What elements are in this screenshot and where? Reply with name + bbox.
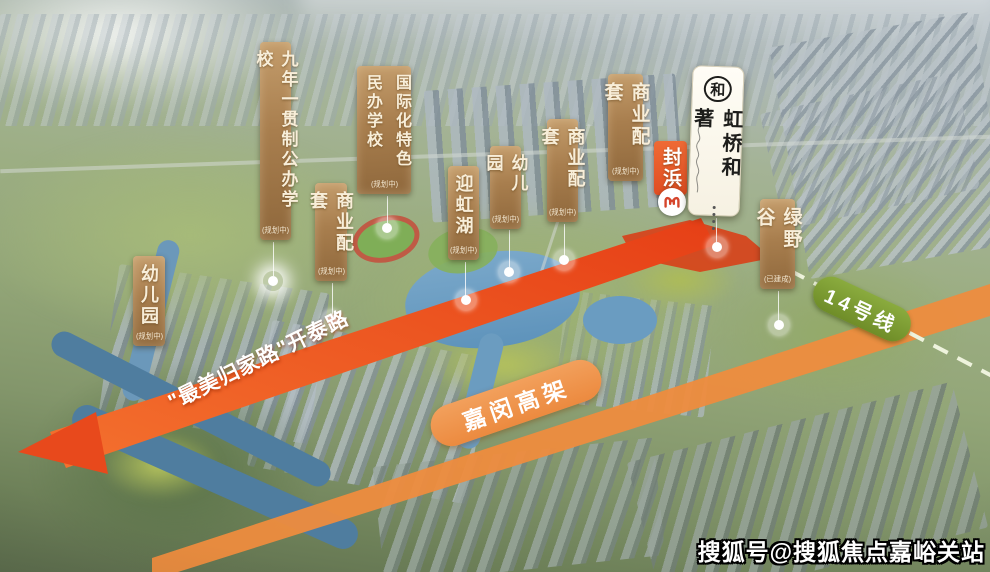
label-note: (规划中) <box>262 224 289 235</box>
station-fengbang-label: 封浜 <box>654 141 687 195</box>
label-kindergarten-center: 幼儿园 (规划中) <box>490 146 521 229</box>
metro-logo <box>658 188 686 216</box>
map-marker-commercial-center <box>554 250 574 270</box>
label-text-columns: 国际化特色 民办学校 <box>355 74 413 169</box>
label-intl-private-school: 国际化特色 民办学校 (规划中) <box>357 66 411 194</box>
project-logo-icon: 和 <box>703 76 732 103</box>
metro-logo-icon <box>661 191 683 213</box>
aerial-masterplan-map: "最美归家路"开泰路 嘉闵高架 14号线 幼儿园 (规划中) 九年一贯制公办学校… <box>0 0 990 572</box>
label-green-valley: 绿野谷 (已建成) <box>760 199 795 289</box>
map-marker-lake <box>456 290 476 310</box>
label-commercial-center: 商业配套 (规划中) <box>547 119 578 222</box>
label-commercial-east: 商业配套 (规划中) <box>608 74 643 181</box>
map-marker-intl-school <box>377 218 397 238</box>
map-marker-public-school <box>263 271 283 291</box>
project-card: 和 虹桥和著 <box>687 65 744 217</box>
label-text: 迎虹湖 <box>451 174 477 237</box>
map-marker-kindergarten-center <box>499 262 519 282</box>
label-kindergarten-west: 幼儿园 (规划中) <box>133 256 165 346</box>
watermark: 搜狐号@搜狐焦点嘉峪关站 <box>698 533 985 567</box>
label-note: (规划中) <box>135 330 162 341</box>
label-text: 九年一贯制公办学校 <box>251 50 301 223</box>
label-text: 商业配套 <box>537 127 589 205</box>
label-text: 绿野谷 <box>751 207 805 272</box>
road-arrowhead <box>18 412 108 474</box>
label-note: (规划中) <box>317 265 344 276</box>
label-text: 幼儿园 <box>136 264 162 327</box>
map-marker-project-site <box>707 237 727 257</box>
label-text: 商业配套 <box>305 191 357 264</box>
card-dots <box>712 206 715 209</box>
label-note: (规划中) <box>450 244 477 255</box>
map-marker-green-valley <box>769 315 789 335</box>
label-public-school: 九年一贯制公办学校 (规划中) <box>260 42 291 240</box>
label-text: 商业配套 <box>599 82 653 164</box>
label-text: 国际化特色 <box>389 74 413 169</box>
label-note: (规划中) <box>612 165 639 176</box>
label-note: (规划中) <box>370 178 397 189</box>
label-commercial-west: 商业配套 (规划中) <box>315 183 347 281</box>
label-note: (规划中) <box>492 213 519 224</box>
station-name: 封浜 <box>657 147 684 189</box>
label-text: 幼儿园 <box>481 154 531 212</box>
label-text: 民办学校 <box>360 74 384 169</box>
label-note: (已建成) <box>764 273 791 284</box>
label-note: (规划中) <box>549 206 576 217</box>
project-logo-char: 和 <box>710 78 726 100</box>
label-yinghong-lake: 迎虹湖 (规划中) <box>448 166 479 260</box>
